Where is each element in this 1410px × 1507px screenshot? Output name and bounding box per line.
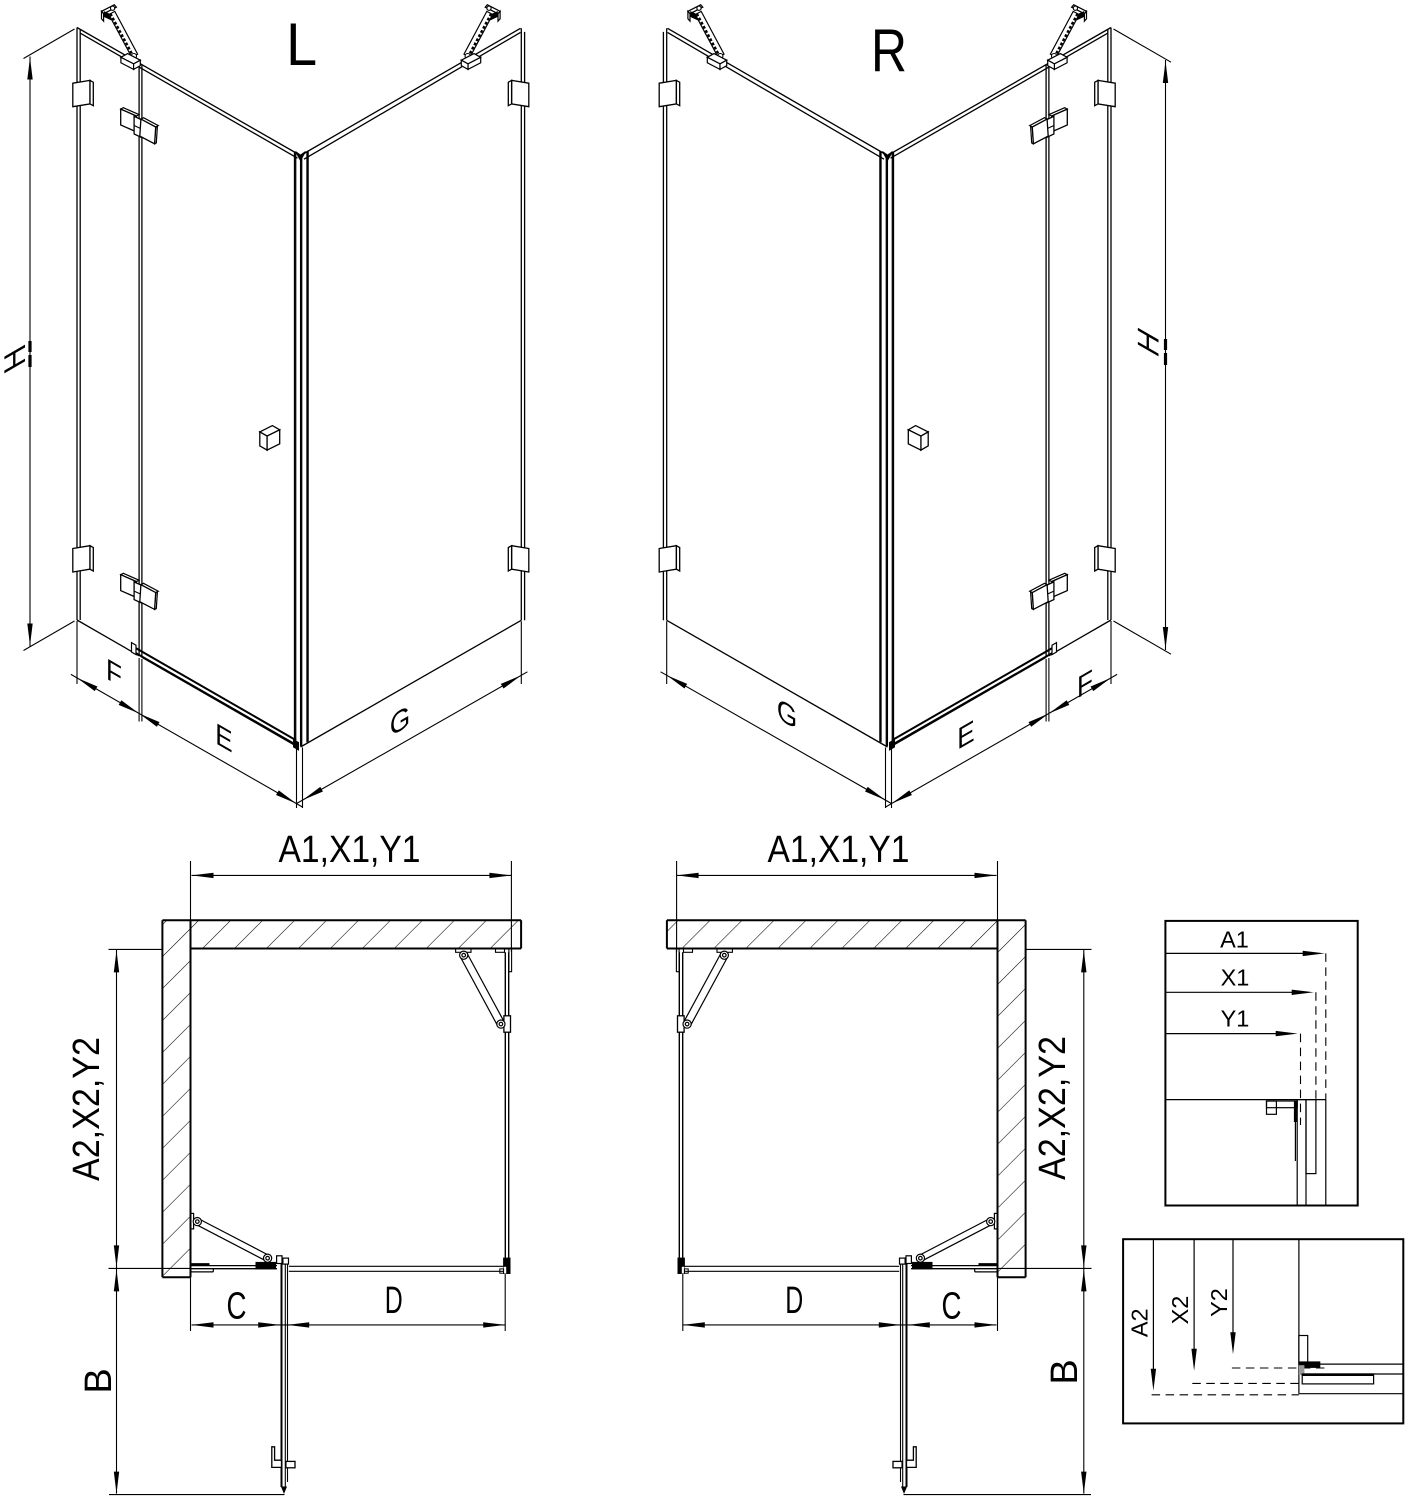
svg-text:X1: X1 — [1221, 965, 1250, 991]
svg-text:A2,X2,Y2: A2,X2,Y2 — [1032, 1036, 1074, 1180]
svg-text:B: B — [78, 1368, 120, 1393]
svg-text:A1,X1,Y1: A1,X1,Y1 — [768, 829, 910, 871]
svg-text:C: C — [942, 1286, 962, 1328]
svg-text:D: D — [385, 1280, 403, 1322]
svg-text:A1: A1 — [1220, 926, 1249, 952]
svg-text:B: B — [1044, 1359, 1086, 1384]
svg-text:A2,X2,Y2: A2,X2,Y2 — [66, 1037, 108, 1181]
svg-text:Y1: Y1 — [1221, 1006, 1250, 1032]
svg-text:L: L — [286, 11, 317, 78]
svg-text:X2: X2 — [1167, 1296, 1193, 1325]
svg-text:D: D — [785, 1280, 803, 1322]
svg-text:C: C — [227, 1286, 247, 1328]
svg-text:A2: A2 — [1127, 1308, 1153, 1337]
svg-text:A1,X1,Y1: A1,X1,Y1 — [279, 829, 421, 871]
svg-text:Y2: Y2 — [1206, 1288, 1232, 1317]
svg-text:R: R — [871, 18, 907, 85]
